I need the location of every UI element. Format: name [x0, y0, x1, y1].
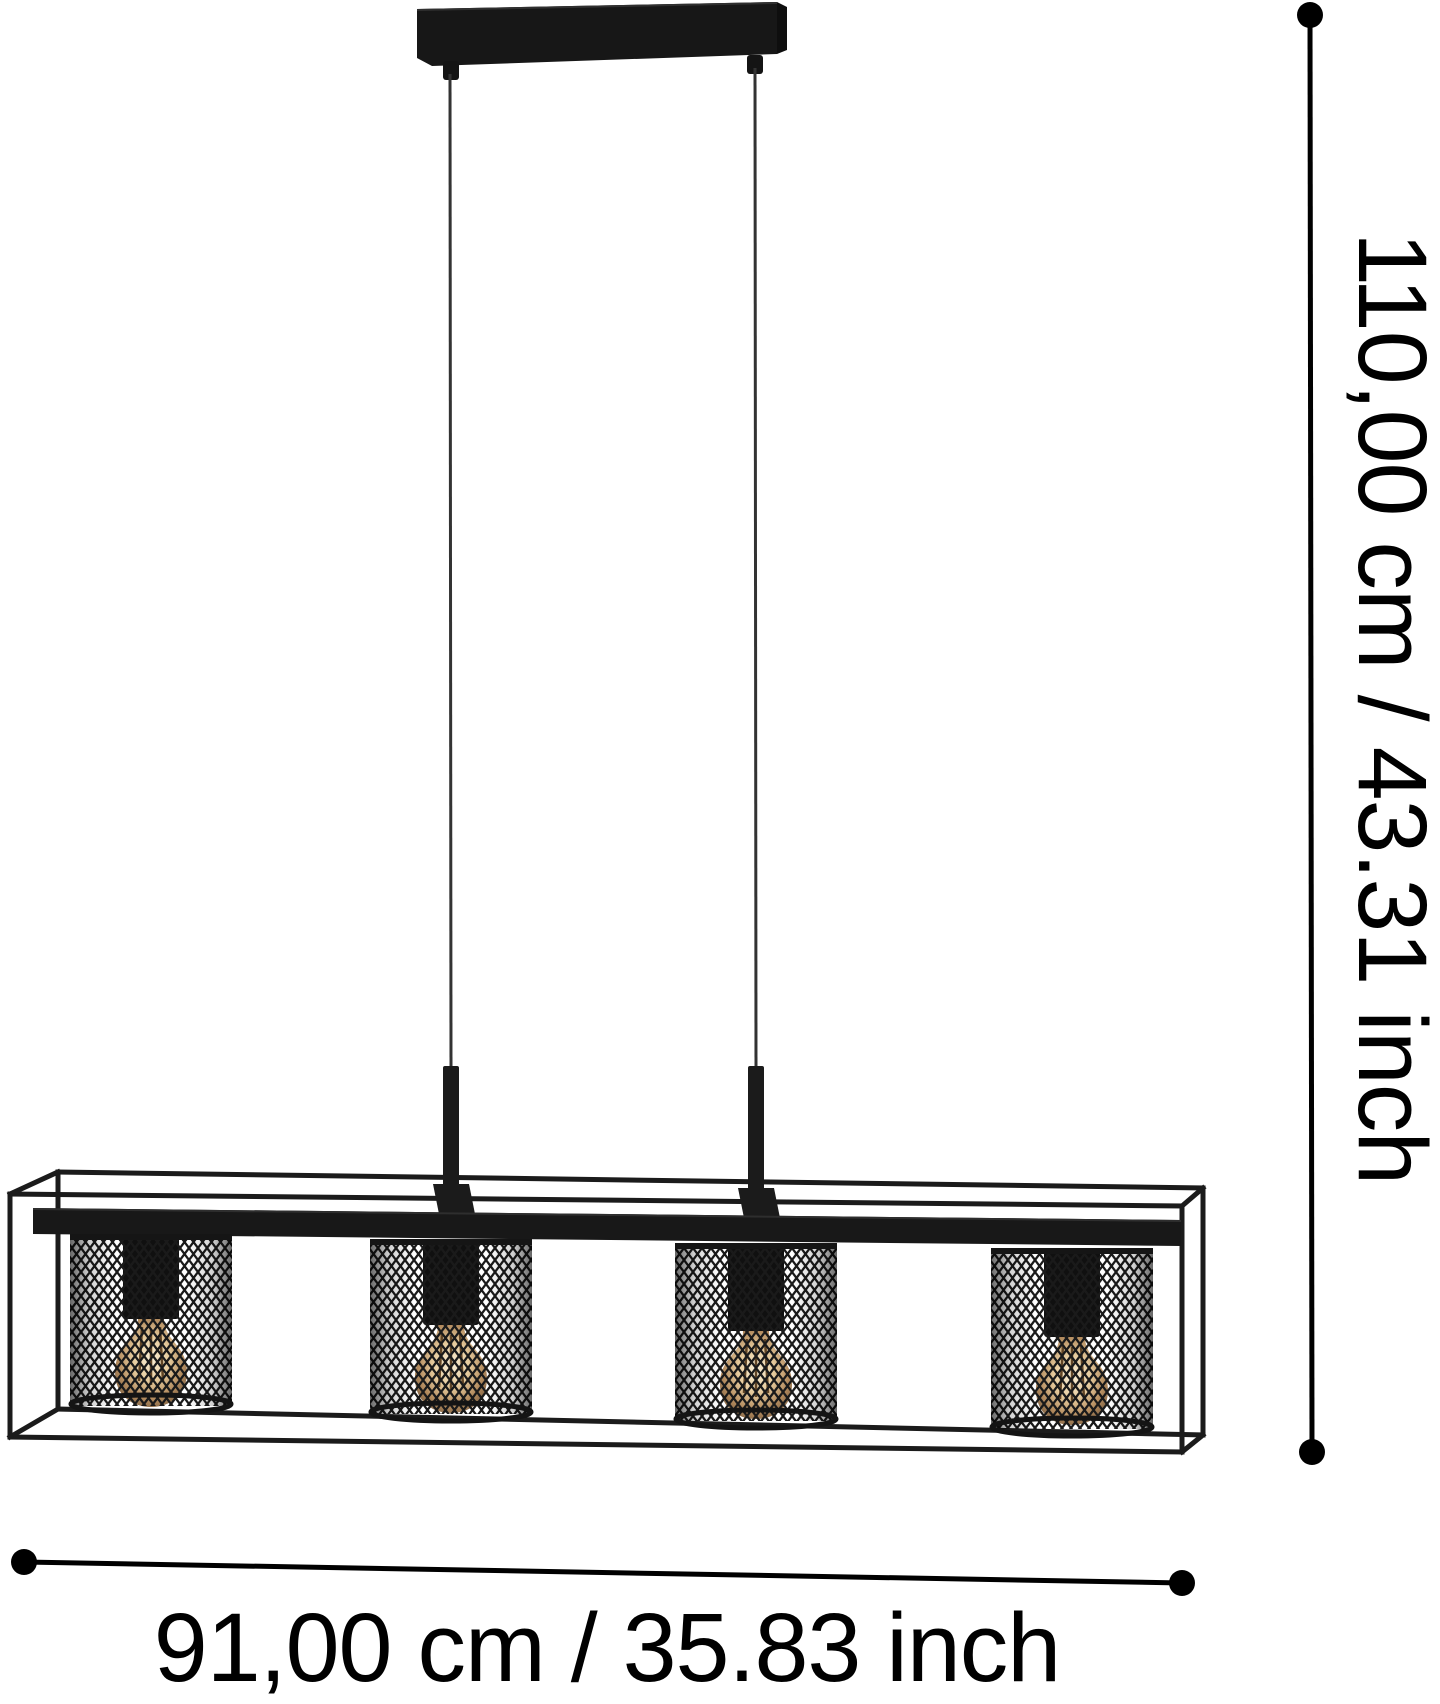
canopy-side-face	[777, 2, 787, 54]
cage-corner-top-left	[10, 1172, 58, 1194]
shade-2	[370, 1239, 532, 1421]
mesh-cylinder-shading	[370, 1239, 532, 1414]
dimension-endpoint-dot-top	[1297, 2, 1323, 28]
mesh-cylinder-shading	[70, 1234, 232, 1406]
width-dimension-line	[11, 1549, 1195, 1596]
pendant-lamp-drawing	[0, 0, 1440, 1704]
suspension-rod-right	[748, 1066, 764, 1222]
shade-3	[675, 1243, 837, 1428]
height-dimension-line	[1297, 2, 1325, 1465]
cage-rail-front-top	[10, 1194, 1182, 1206]
cage-corner-bottom-left	[10, 1409, 58, 1437]
dimension-endpoint-dot-right	[1169, 1570, 1195, 1596]
cage-rail-back-top	[58, 1172, 1203, 1188]
suspension-cable-right	[755, 68, 756, 1068]
width-dimension-label: 91,00 cm / 35.83 inch	[105, 1599, 1109, 1696]
height-dimension-label: 110,00 cm / 43.31 inch	[1344, 232, 1440, 1242]
suspension-rod-left	[443, 1066, 459, 1216]
mesh-top-rim	[70, 1234, 232, 1240]
cage-corner-bottom-right	[1182, 1435, 1203, 1452]
mesh-top-rim	[675, 1243, 837, 1249]
canopy-front-face	[417, 2, 777, 66]
mesh-cylinder-shading	[675, 1243, 837, 1421]
product-dimension-diagram: 110,00 cm / 43.31 inch 91,00 cm / 35.83 …	[0, 0, 1440, 1704]
cage-rail-front-bottom	[10, 1437, 1182, 1452]
shade-4	[991, 1248, 1153, 1436]
mesh-top-rim	[370, 1239, 532, 1245]
mesh-cylinder-shading	[991, 1248, 1153, 1429]
cage-corner-top-right	[1182, 1188, 1203, 1206]
dimension-endpoint-dot-left	[11, 1549, 37, 1575]
ceiling-canopy	[417, 2, 787, 80]
dimension-endpoint-dot-bottom	[1299, 1439, 1325, 1465]
mesh-top-rim	[991, 1248, 1153, 1254]
suspension-cable-left	[450, 74, 451, 1068]
shade-1	[70, 1234, 232, 1413]
